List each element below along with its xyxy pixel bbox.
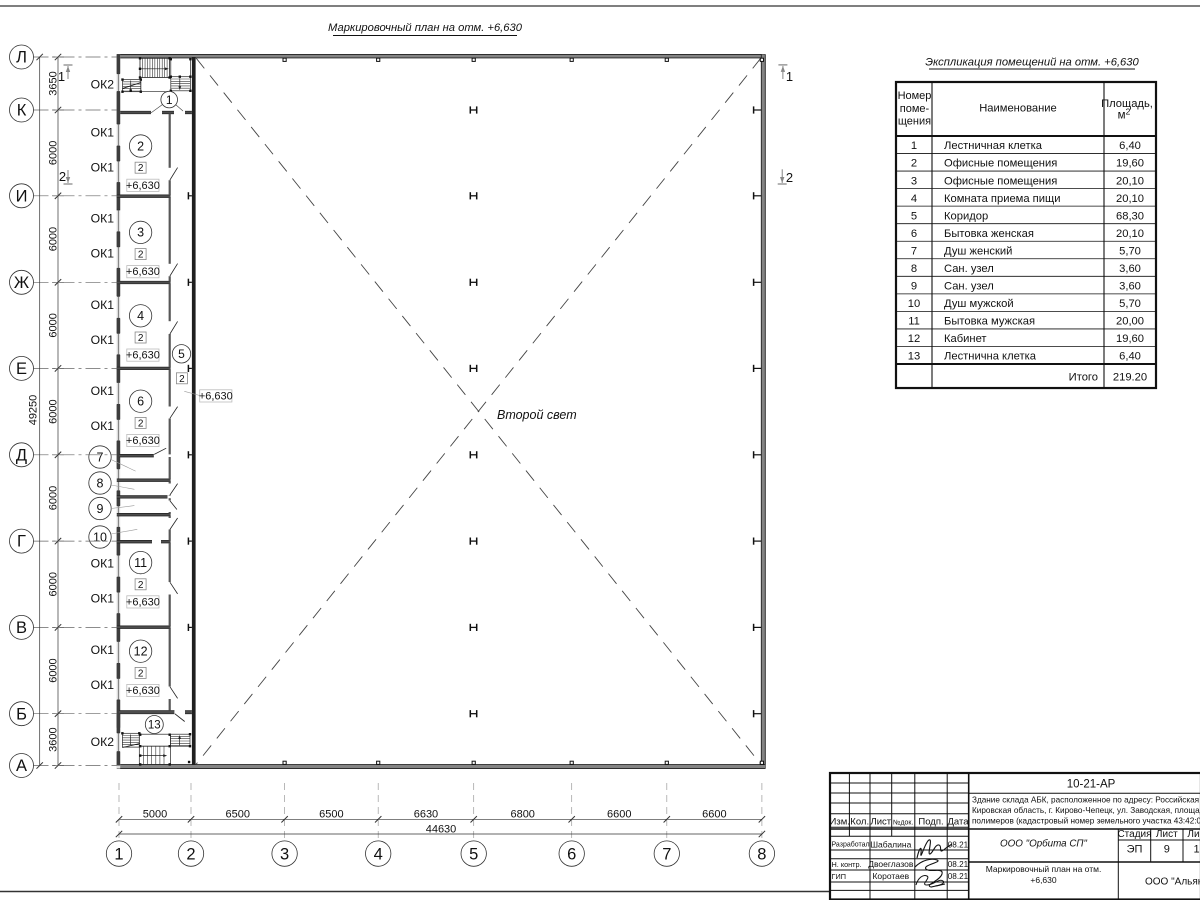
svg-text:2: 2 <box>59 169 66 184</box>
svg-text:ОК1: ОК1 <box>91 333 115 347</box>
svg-text:3,60: 3,60 <box>1119 281 1141 293</box>
svg-text:13: 13 <box>148 720 161 732</box>
svg-text:В: В <box>16 619 27 637</box>
svg-text:ОК1: ОК1 <box>91 211 115 225</box>
svg-text:Е: Е <box>16 360 27 378</box>
svg-text:полимеров (кадастровый номер з: полимеров (кадастровый номер земельного … <box>972 817 1200 826</box>
svg-text:9: 9 <box>1164 844 1170 856</box>
svg-text:9: 9 <box>97 502 104 516</box>
svg-text:Ж: Ж <box>14 274 30 292</box>
svg-text:6600: 6600 <box>702 808 726 820</box>
svg-text:Ли: Ли <box>1187 829 1199 840</box>
svg-text:ОК2: ОК2 <box>91 735 115 749</box>
svg-text:Комната приема пищи: Комната приема пищи <box>944 193 1060 205</box>
svg-text:Б: Б <box>16 705 27 723</box>
svg-text:4: 4 <box>911 193 917 205</box>
svg-text:Коридор: Коридор <box>944 210 988 222</box>
svg-text:Итого: Итого <box>1069 372 1098 384</box>
svg-text:Разработал: Разработал <box>832 841 870 849</box>
svg-text:2: 2 <box>138 163 144 174</box>
svg-text:Лестнична клетка: Лестнична клетка <box>944 351 1037 363</box>
svg-text:6: 6 <box>567 845 576 863</box>
svg-text:6,40: 6,40 <box>1119 140 1141 152</box>
svg-text:20,10: 20,10 <box>1116 193 1144 205</box>
svg-text:+6,630: +6,630 <box>126 180 160 192</box>
svg-text:+6,630: +6,630 <box>1030 875 1057 885</box>
svg-text:ОК1: ОК1 <box>91 384 115 398</box>
svg-text:2: 2 <box>138 580 144 591</box>
svg-text:Бытовка мужская: Бытовка мужская <box>944 316 1035 328</box>
svg-text:219.20: 219.20 <box>1113 372 1147 384</box>
svg-text:20,10: 20,10 <box>1116 175 1144 187</box>
svg-text:08.21: 08.21 <box>948 872 969 881</box>
svg-text:щения: щения <box>898 116 931 128</box>
svg-text:2: 2 <box>179 374 185 385</box>
svg-text:2: 2 <box>911 158 917 170</box>
svg-text:Второй свет: Второй свет <box>497 408 577 422</box>
svg-text:+6,630: +6,630 <box>126 266 160 278</box>
svg-text:5: 5 <box>911 210 917 222</box>
svg-text:3: 3 <box>911 175 917 187</box>
svg-text:ОК1: ОК1 <box>91 419 115 433</box>
svg-text:2: 2 <box>138 418 144 429</box>
svg-text:+6,630: +6,630 <box>126 596 160 608</box>
svg-text:ОК1: ОК1 <box>91 557 115 571</box>
svg-text:Маркировочный план на отм.: Маркировочный план на отм. <box>986 864 1102 874</box>
svg-text:9: 9 <box>911 281 917 293</box>
svg-text:Здание склада АБК, расположенн: Здание склада АБК, расположенное по адре… <box>972 796 1200 805</box>
svg-text:2: 2 <box>137 139 144 153</box>
svg-text:3600: 3600 <box>47 727 59 751</box>
svg-text:19,60: 19,60 <box>1116 158 1144 170</box>
svg-text:Лист: Лист <box>870 817 891 828</box>
svg-text:Лист: Лист <box>1156 829 1178 840</box>
svg-text:2: 2 <box>786 170 793 185</box>
svg-text:ГИП: ГИП <box>832 872 846 881</box>
svg-text:5,70: 5,70 <box>1119 245 1141 257</box>
svg-text:+6,630: +6,630 <box>126 350 160 362</box>
svg-text:2: 2 <box>138 250 144 261</box>
svg-text:Кол.: Кол. <box>850 817 869 828</box>
svg-text:Дата: Дата <box>947 817 969 828</box>
svg-text:8: 8 <box>757 845 766 863</box>
svg-text:2: 2 <box>138 333 144 344</box>
svg-text:ОК1: ОК1 <box>91 161 115 175</box>
svg-text:6000: 6000 <box>47 399 59 423</box>
svg-text:Кабинет: Кабинет <box>944 333 987 345</box>
svg-text:Офисные помещения: Офисные помещения <box>944 175 1057 187</box>
svg-text:Подп.: Подп. <box>918 817 943 828</box>
svg-text:44630: 44630 <box>426 823 457 835</box>
svg-text:Шабалина: Шабалина <box>870 840 911 850</box>
svg-text:5: 5 <box>469 845 478 863</box>
svg-text:68,30: 68,30 <box>1116 210 1144 222</box>
svg-text:08.21: 08.21 <box>948 860 969 869</box>
svg-text:Сан. узел: Сан. узел <box>944 263 994 275</box>
svg-text:2: 2 <box>186 845 195 863</box>
svg-text:ЭП: ЭП <box>1127 844 1143 856</box>
svg-text:ОК1: ОК1 <box>91 643 115 657</box>
svg-text:12: 12 <box>908 333 920 345</box>
svg-text:1: 1 <box>786 69 793 84</box>
svg-text:2: 2 <box>138 668 144 679</box>
svg-text:1: 1 <box>114 845 123 863</box>
svg-text:А: А <box>16 757 27 775</box>
svg-text:Бытовка женская: Бытовка женская <box>944 228 1034 240</box>
svg-text:6500: 6500 <box>226 808 250 820</box>
svg-text:3: 3 <box>280 845 289 863</box>
svg-text:№док.: №док. <box>893 820 914 827</box>
svg-text:6500: 6500 <box>319 808 343 820</box>
svg-text:20,00: 20,00 <box>1116 316 1144 328</box>
svg-text:6: 6 <box>911 228 917 240</box>
svg-text:1: 1 <box>1193 844 1199 856</box>
svg-text:Экспликация помещений на отм.: Экспликация помещений на отм. +6,630 <box>925 57 1139 69</box>
svg-text:5000: 5000 <box>143 808 167 820</box>
svg-text:м2: м2 <box>1118 107 1131 122</box>
svg-text:11: 11 <box>908 316 920 328</box>
svg-text:ООО "Орбита СП": ООО "Орбита СП" <box>1000 839 1087 850</box>
svg-text:Д: Д <box>16 446 27 464</box>
svg-text:10: 10 <box>93 530 107 544</box>
svg-text:6000: 6000 <box>47 486 59 510</box>
svg-text:19,60: 19,60 <box>1116 333 1144 345</box>
svg-text:10-21-АР: 10-21-АР <box>1067 779 1116 791</box>
svg-text:Кировская область, г. Кирово-Ч: Кировская область, г. Кирово-Чепецк, ул.… <box>972 806 1200 815</box>
svg-text:Изм.: Изм. <box>830 817 850 828</box>
svg-text:1: 1 <box>58 69 65 84</box>
svg-text:6000: 6000 <box>47 313 59 337</box>
svg-text:6600: 6600 <box>607 808 631 820</box>
svg-text:Наименование: Наименование <box>979 103 1057 115</box>
svg-text:поме-: поме- <box>900 103 930 115</box>
svg-text:ОК2: ОК2 <box>91 78 115 92</box>
svg-text:1: 1 <box>911 140 917 152</box>
svg-text:13: 13 <box>908 351 920 363</box>
svg-text:Н. контр.: Н. контр. <box>832 860 862 869</box>
svg-text:Лестничная клетка: Лестничная клетка <box>944 140 1043 152</box>
svg-text:49250: 49250 <box>27 395 39 426</box>
svg-text:Коротаев: Коротаев <box>872 871 909 881</box>
svg-text:К: К <box>17 102 27 120</box>
svg-text:7: 7 <box>911 245 917 257</box>
svg-text:3,60: 3,60 <box>1119 263 1141 275</box>
svg-text:7: 7 <box>662 845 671 863</box>
svg-text:6000: 6000 <box>47 572 59 596</box>
svg-text:ОК1: ОК1 <box>91 126 115 140</box>
svg-text:Офисные помещения: Офисные помещения <box>944 158 1057 170</box>
svg-text:Стадия: Стадия <box>1117 829 1151 840</box>
svg-text:4: 4 <box>137 309 144 323</box>
svg-text:Душ мужской: Душ мужской <box>944 298 1014 310</box>
svg-text:И: И <box>16 187 28 205</box>
svg-text:5: 5 <box>178 347 185 361</box>
svg-text:ОК1: ОК1 <box>91 298 115 312</box>
svg-text:1: 1 <box>166 93 173 107</box>
svg-text:ОК1: ОК1 <box>91 246 115 260</box>
svg-text:8: 8 <box>97 476 104 490</box>
svg-text:6000: 6000 <box>47 227 59 251</box>
svg-text:6000: 6000 <box>47 658 59 682</box>
svg-text:6: 6 <box>137 395 144 409</box>
svg-text:20,10: 20,10 <box>1116 228 1144 240</box>
svg-text:6000: 6000 <box>47 141 59 165</box>
svg-text:Душ женский: Душ женский <box>944 245 1012 257</box>
svg-text:6630: 6630 <box>414 808 438 820</box>
svg-text:ОК1: ОК1 <box>91 592 115 606</box>
svg-text:11: 11 <box>134 556 147 570</box>
svg-text:12: 12 <box>134 645 148 659</box>
svg-text:7: 7 <box>97 450 104 464</box>
svg-text:3: 3 <box>137 226 144 240</box>
svg-text:6,40: 6,40 <box>1119 351 1141 363</box>
svg-text:8: 8 <box>911 263 917 275</box>
svg-text:10: 10 <box>908 298 920 310</box>
svg-text:Маркировочный план на отм. +6,: Маркировочный план на отм. +6,630 <box>328 22 523 34</box>
svg-text:+6,630: +6,630 <box>199 390 233 402</box>
svg-text:5,70: 5,70 <box>1119 298 1141 310</box>
svg-text:Г: Г <box>17 533 26 551</box>
svg-text:ОК1: ОК1 <box>91 678 115 692</box>
svg-text:6800: 6800 <box>510 808 534 820</box>
svg-text:+6,630: +6,630 <box>126 685 160 697</box>
svg-text:ООО "Альяно: ООО "Альяно <box>1145 877 1200 888</box>
svg-text:4: 4 <box>374 845 383 863</box>
svg-text:Сан. узел: Сан. узел <box>944 281 994 293</box>
svg-text:Номер: Номер <box>898 90 932 102</box>
svg-text:+6,630: +6,630 <box>126 435 160 447</box>
svg-text:Л: Л <box>16 49 27 67</box>
svg-text:Двоеглазов: Двоеглазов <box>868 859 914 869</box>
